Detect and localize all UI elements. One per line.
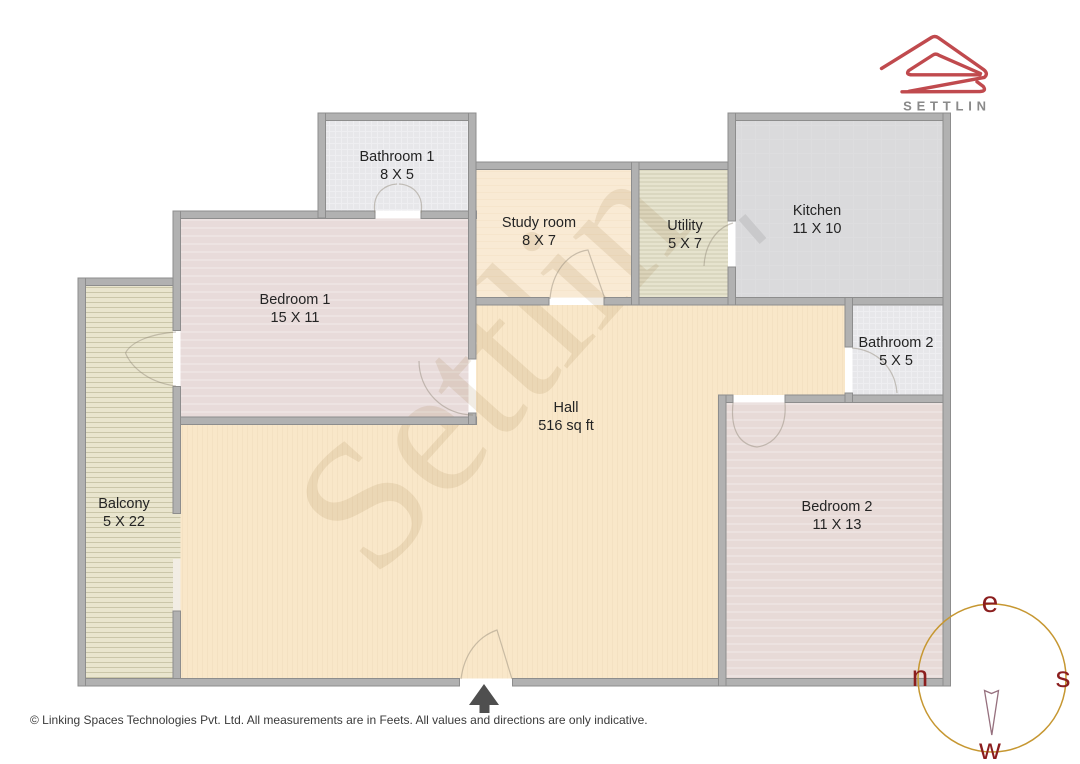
svg-text:SETTLIN: SETTLIN [903,99,991,114]
svg-text:15 X 11: 15 X 11 [271,310,320,326]
svg-text:w: w [978,733,1001,764]
svg-text:516 sq ft: 516 sq ft [538,418,594,434]
svg-text:Study room: Study room [502,215,576,231]
svg-text:e: e [982,586,999,619]
svg-text:5 X 7: 5 X 7 [668,236,702,252]
svg-text:Kitchen: Kitchen [793,203,841,219]
svg-text:s: s [1056,661,1071,694]
svg-text:5 X 22: 5 X 22 [103,514,145,530]
svg-text:Bedroom 2: Bedroom 2 [802,499,873,515]
svg-text:8 X 5: 8 X 5 [380,167,414,183]
svg-text:n: n [912,660,929,693]
svg-text:Hall: Hall [554,400,579,416]
svg-text:Bathroom 2: Bathroom 2 [859,335,934,351]
svg-text:8 X 7: 8 X 7 [522,233,556,249]
svg-text:11 X 13: 11 X 13 [813,517,862,533]
svg-text:Utility: Utility [667,218,703,234]
svg-text:Balcony: Balcony [98,496,150,512]
svg-text:© Linking Spaces Technologies: © Linking Spaces Technologies Pvt. Ltd. … [30,713,648,727]
svg-text:11 X 10: 11 X 10 [793,221,842,237]
svg-text:5 X 5: 5 X 5 [879,353,913,369]
svg-text:Bedroom 1: Bedroom 1 [260,292,331,308]
svg-text:Bathroom 1: Bathroom 1 [360,149,435,165]
